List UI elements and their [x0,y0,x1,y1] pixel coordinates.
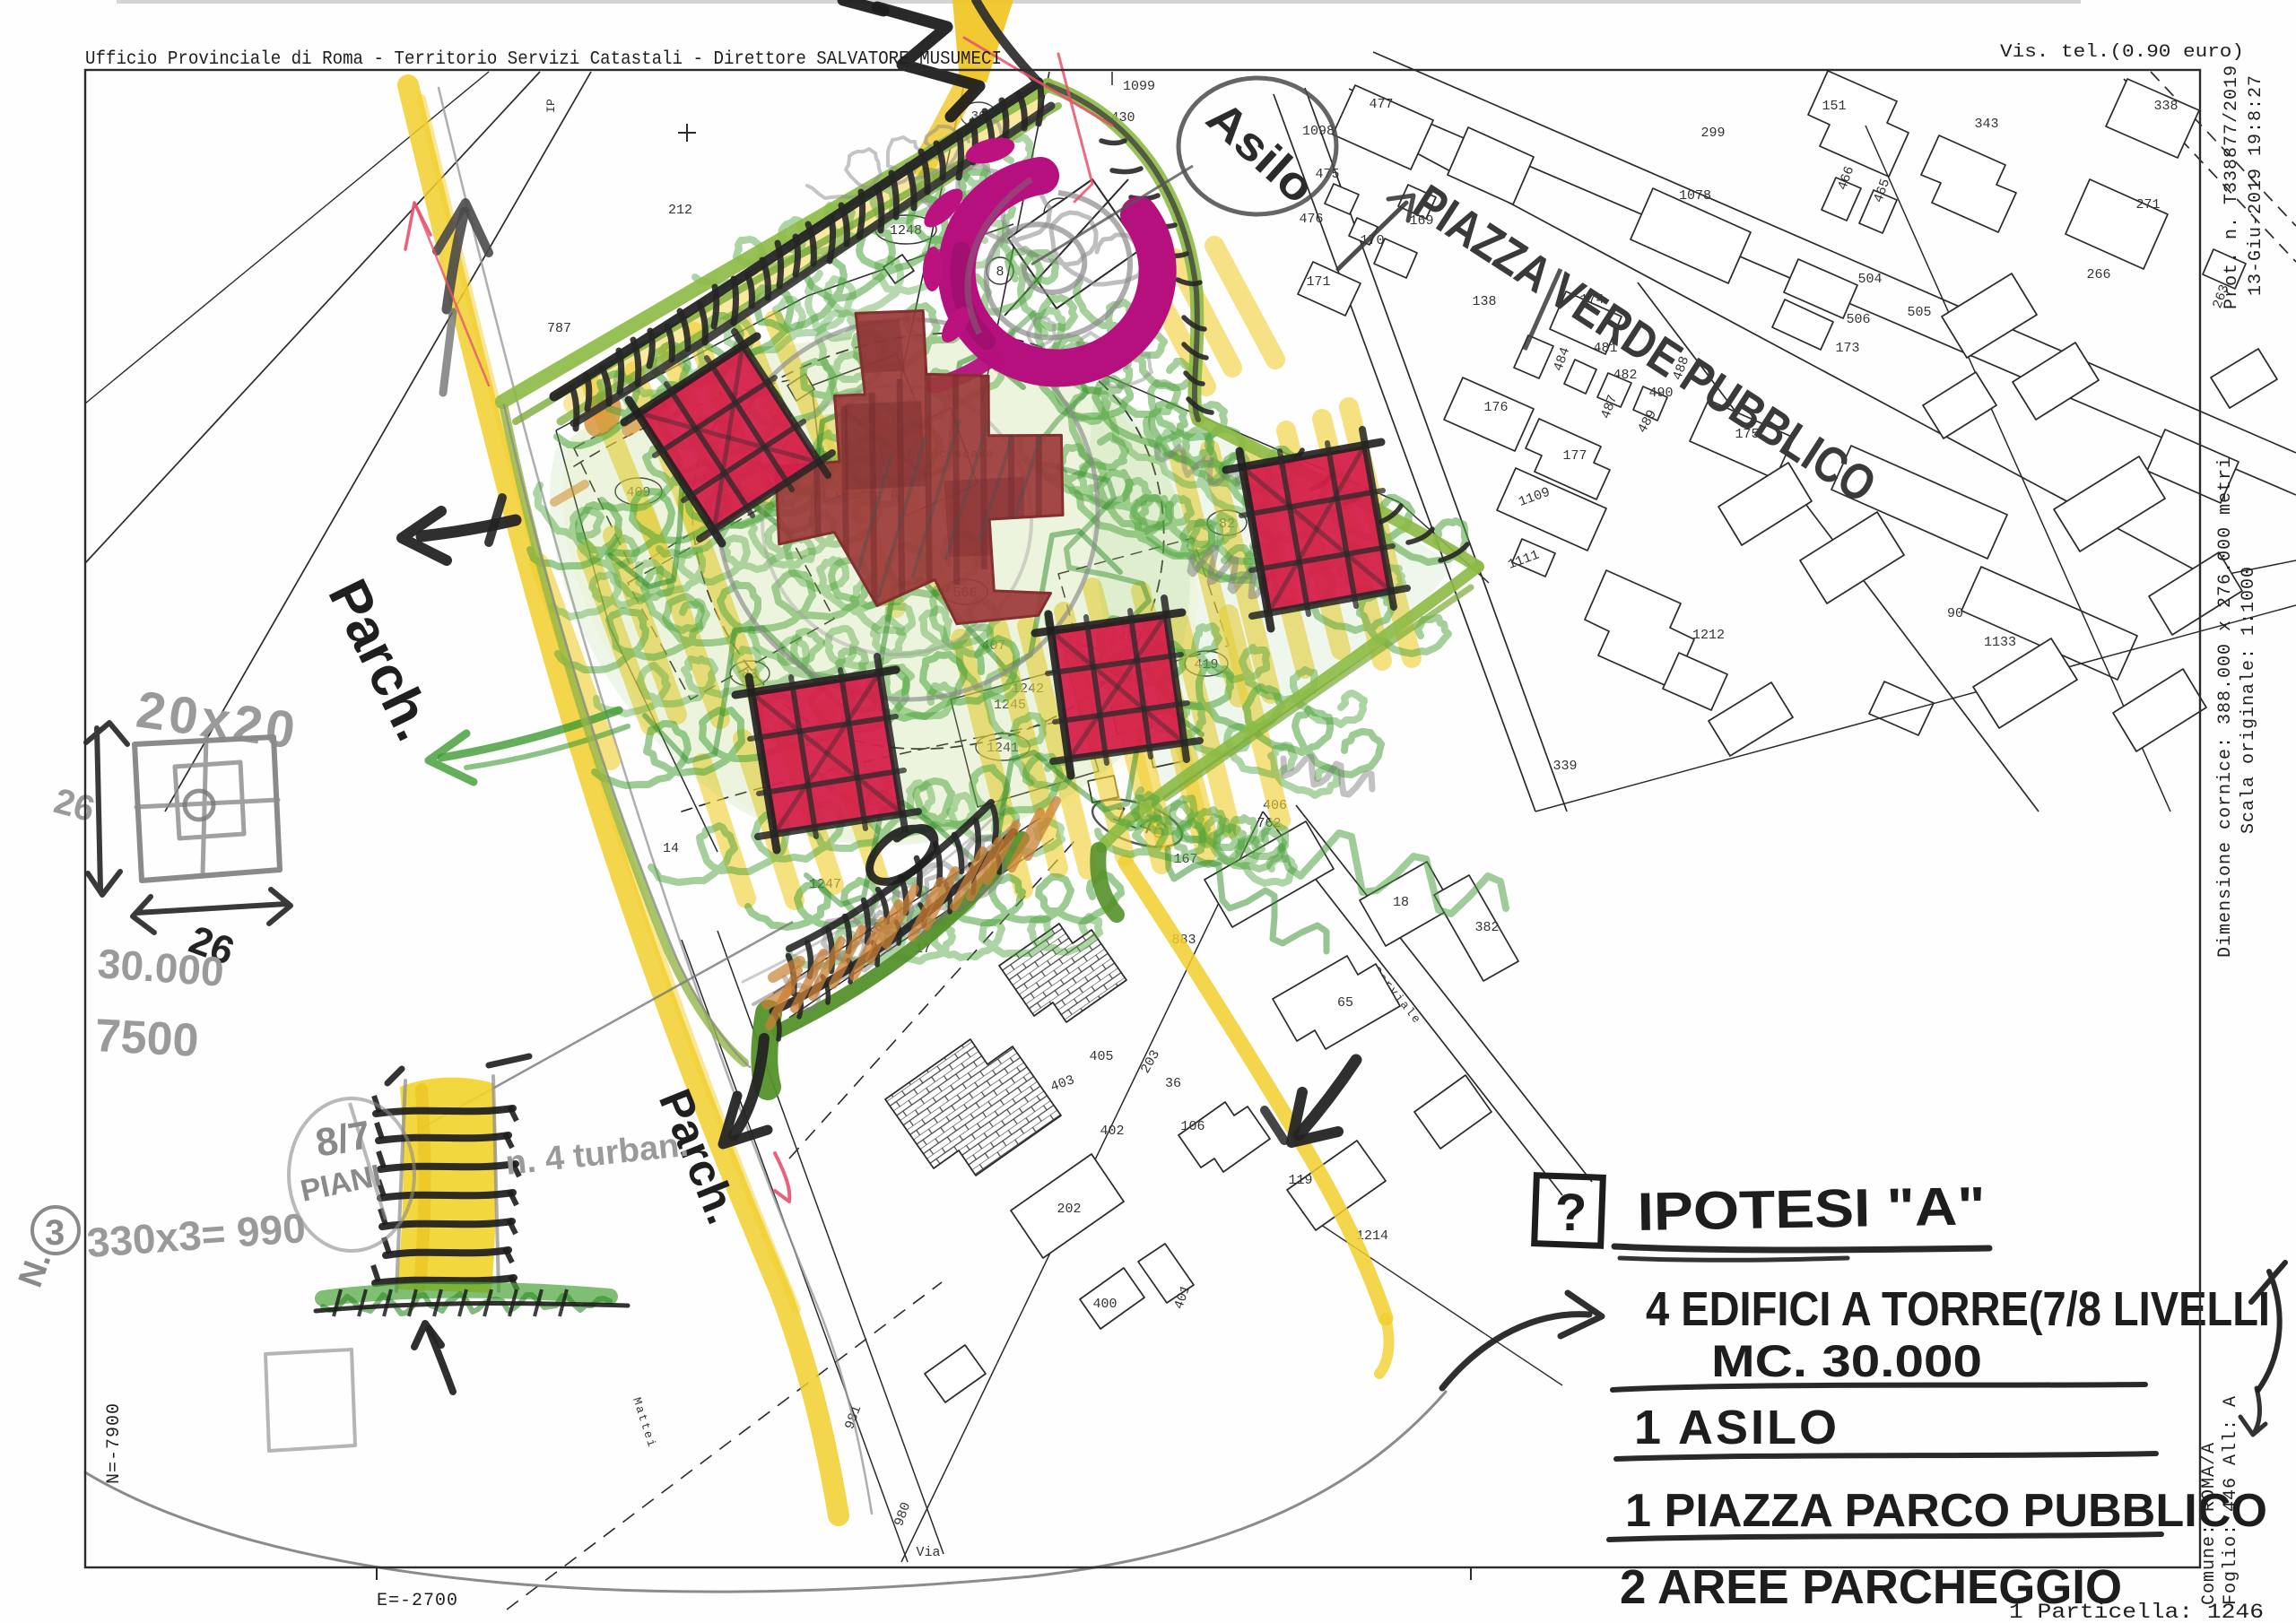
svg-text:IPOTESI "A": IPOTESI "A" [1637,1176,1986,1242]
svg-text:382: 382 [1474,920,1499,935]
svg-text:Prot. n. T338877/2019: Prot. n. T338877/2019 [2222,65,2242,309]
svg-text:N=-7900: N=-7900 [104,1402,125,1484]
svg-text:8/7: 8/7 [312,1113,374,1166]
svg-text:18: 18 [1393,895,1409,910]
svg-text:271: 271 [2135,197,2160,213]
svg-text:30.000: 30.000 [96,940,225,995]
svg-text:1 PIAZZA PARCO PUBBLICO: 1 PIAZZA PARCO PUBBLICO [1625,1485,2267,1537]
svg-text:E=-2700: E=-2700 [377,1591,458,1611]
svg-text:338: 338 [2153,99,2178,114]
svg-text:506: 506 [1846,312,1870,327]
svg-text:65: 65 [1337,995,1353,1011]
svg-text:171: 171 [1306,274,1330,290]
svg-text:Comune: ROMA/A: Comune: ROMA/A [2199,1442,2220,1605]
svg-text:476: 476 [1299,212,1323,227]
svg-text:1 Particella: 1246: 1 Particella: 1246 [2009,1601,2264,1623]
svg-text:Foglio: 446 All: A: Foglio: 446 All: A [2221,1395,2241,1605]
svg-text:339: 339 [1552,759,1577,774]
svg-text:1078: 1078 [1679,188,1711,204]
svg-text:106: 106 [1180,1119,1205,1134]
svg-text:IP: IP [544,99,558,113]
svg-text:202: 202 [1057,1202,1081,1217]
svg-text:482: 482 [1613,368,1637,383]
svg-text:405: 405 [1089,1049,1113,1064]
svg-text:Scala originale: 1:1000: Scala originale: 1:1000 [2239,566,2259,834]
svg-text:Dimensione cornice: 388.000 x: Dimensione cornice: 388.000 x 276.000 me… [2215,456,2236,958]
svg-text:4 EDIFICI A TORRE(7/8 LIVELLI: 4 EDIFICI A TORRE(7/8 LIVELLI [1646,1282,2270,1336]
svg-text:505: 505 [1907,305,1931,320]
svg-text:151: 151 [1822,99,1846,114]
svg-text:3: 3 [45,1213,65,1253]
svg-text:1133: 1133 [1984,635,2016,650]
svg-text:299: 299 [1700,126,1725,141]
svg-text:1 ASILO: 1 ASILO [1634,1401,1839,1454]
svg-text:504: 504 [1857,272,1882,287]
svg-text:119: 119 [1288,1173,1312,1188]
svg-text:?: ? [1555,1184,1587,1242]
svg-text:13-Giu-2019 19:8:27: 13-Giu-2019 19:8:27 [2246,74,2266,296]
svg-text:1212: 1212 [1692,628,1725,643]
svg-text:Via: Via [916,1545,940,1560]
svg-text:7500: 7500 [93,1010,200,1067]
svg-text:266: 266 [2086,267,2110,282]
svg-text:177: 177 [1562,448,1587,464]
svg-text:212: 212 [668,203,692,218]
svg-text:36: 36 [1165,1076,1181,1091]
svg-text:Vis. tel.(0.90 euro): Vis. tel.(0.90 euro) [2000,42,2244,63]
svg-text:400: 400 [1092,1297,1117,1312]
svg-text:343: 343 [1974,117,1998,132]
svg-text:MC. 30.000: MC. 30.000 [1711,1336,1982,1386]
svg-text:Ufficio Provinciale di Roma -: Ufficio Provinciale di Roma - Territorio… [85,49,1002,70]
svg-text:90: 90 [1947,606,1963,621]
svg-text:138: 138 [1472,294,1496,309]
svg-text:8: 8 [996,265,1004,280]
svg-text:1099: 1099 [1123,79,1155,94]
svg-text:477: 477 [1369,97,1393,112]
svg-text:787: 787 [547,321,571,336]
svg-text:1098: 1098 [1302,124,1335,139]
svg-text:402: 402 [1100,1124,1124,1139]
svg-text:176: 176 [1483,400,1508,415]
svg-text:14: 14 [663,841,679,856]
svg-text:173: 173 [1835,341,1859,356]
